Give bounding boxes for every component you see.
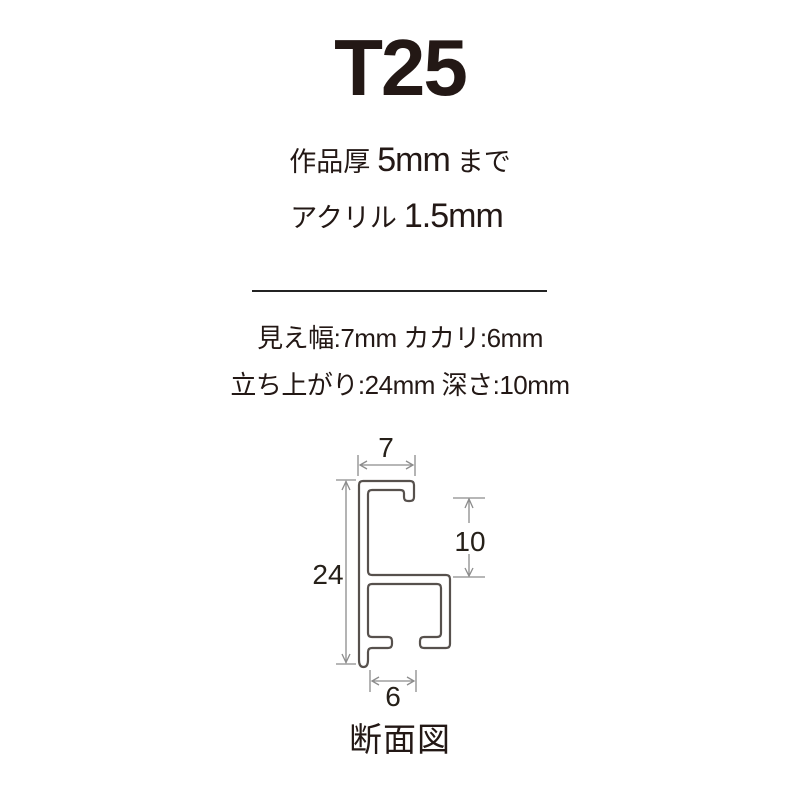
detail-rise-depth: 立ち上がり:24mm 深さ:10mm <box>0 367 800 403</box>
dim-label-inner-depth: 10 <box>454 526 485 557</box>
acrylic-value: 1.5mm <box>404 197 503 235</box>
work-thickness-value: 5mm <box>377 141 450 179</box>
section-caption: 断面図 <box>0 718 800 762</box>
acrylic-spec: アクリル1.5mm <box>0 196 800 243</box>
divider-line <box>252 290 547 292</box>
work-thickness-label: 作品厚 <box>289 147 370 177</box>
cross-section-diagram: 7 24 10 6 <box>300 430 500 720</box>
page-title: T25 <box>0 28 800 108</box>
dim-label-height: 24 <box>312 559 343 590</box>
frame-profile-outline <box>359 481 450 667</box>
dim-label-top-width: 7 <box>378 432 394 463</box>
dimension-top-width-group: 7 <box>358 432 415 476</box>
dimension-inner-depth-group: 10 <box>453 498 486 577</box>
acrylic-label: アクリル <box>290 203 397 233</box>
detail-visible-width: 見え幅:7mm カカリ:6mm <box>0 320 800 356</box>
dimension-height-group: 24 <box>312 480 356 664</box>
work-thickness-spec: 作品厚5mmまで <box>0 140 800 187</box>
work-thickness-suffix: まで <box>457 147 511 177</box>
dimension-bottom-width-group: 6 <box>370 670 416 712</box>
dim-label-bottom-width: 6 <box>385 681 401 712</box>
